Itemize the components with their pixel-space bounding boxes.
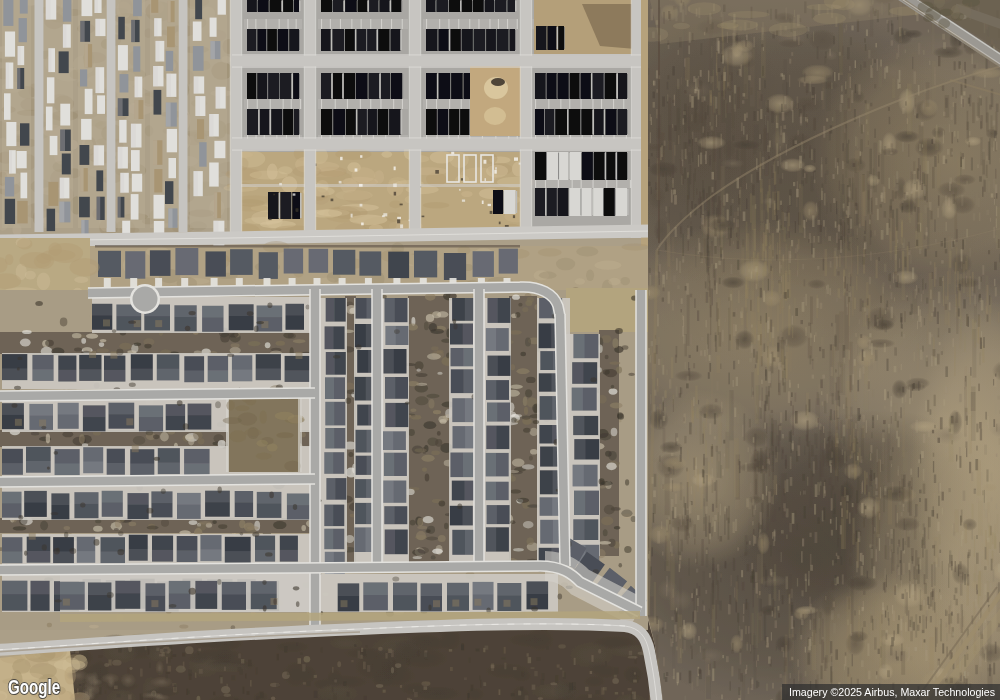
svg-text:Google: Google	[8, 674, 60, 698]
svg-text:Imagery ©2025 Airbus, Maxar Te: Imagery ©2025 Airbus, Maxar Technologies	[789, 686, 995, 698]
